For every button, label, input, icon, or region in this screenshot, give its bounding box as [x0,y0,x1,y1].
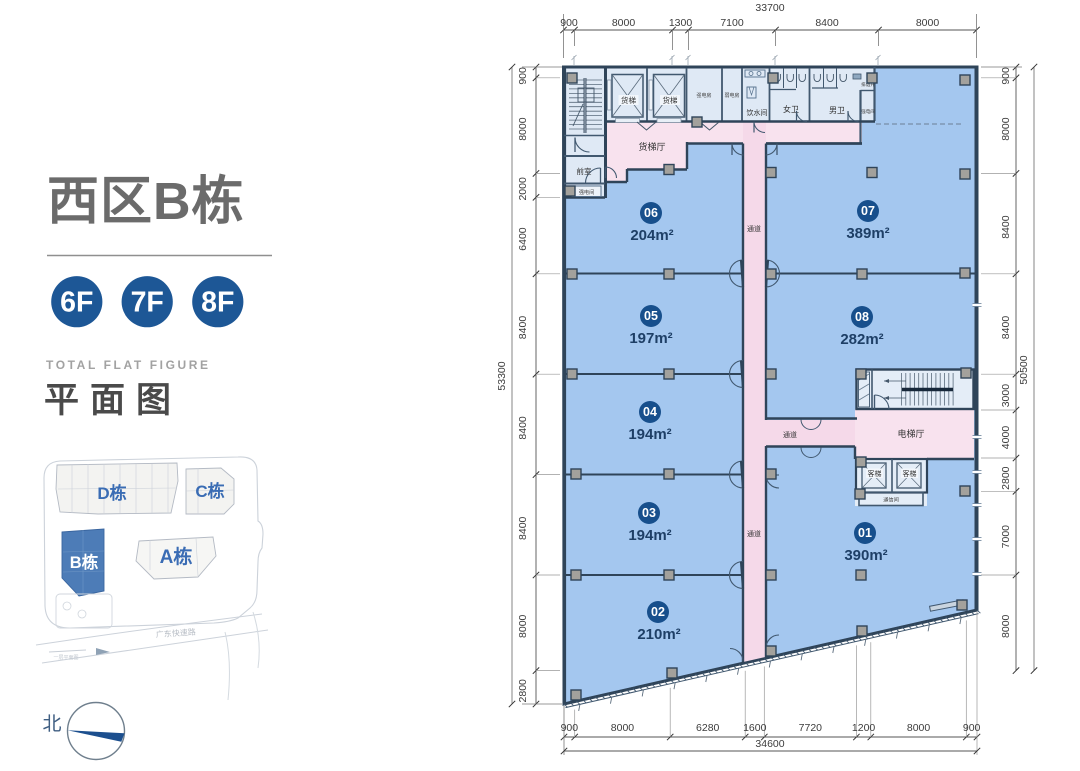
svg-text:06: 06 [644,206,658,220]
svg-text:通道: 通道 [783,430,797,439]
svg-text:282m²: 282m² [840,331,883,348]
svg-text:389m²: 389m² [846,225,889,242]
svg-text:204m²: 204m² [630,227,673,244]
svg-text:TOTAL FLAT FIGURE: TOTAL FLAT FIGURE [46,358,211,372]
svg-text:900: 900 [561,722,579,734]
svg-text:1300: 1300 [669,17,693,29]
svg-text:8400: 8400 [1000,215,1012,239]
svg-text:8400: 8400 [517,316,529,340]
svg-text:194m²: 194m² [628,426,671,443]
svg-text:900: 900 [1000,67,1012,85]
svg-text:8000: 8000 [1000,614,1012,638]
svg-text:6400: 6400 [517,227,529,251]
svg-text:04: 04 [643,405,657,419]
svg-text:8400: 8400 [517,416,529,440]
svg-text:1600: 1600 [743,722,767,734]
svg-text:210m²: 210m² [637,626,680,643]
svg-text:电梯厅: 电梯厅 [897,428,924,439]
svg-text:197m²: 197m² [629,330,672,347]
svg-text:8000: 8000 [612,17,636,29]
svg-text:34600: 34600 [755,738,784,750]
svg-text:A栋: A栋 [160,545,193,568]
svg-text:194m²: 194m² [628,527,671,544]
svg-text:900: 900 [560,17,578,29]
svg-text:8000: 8000 [907,722,931,734]
svg-text:3000: 3000 [1000,384,1012,408]
svg-text:7720: 7720 [799,722,823,734]
svg-text:01: 01 [858,526,872,540]
svg-text:50500: 50500 [1018,355,1030,384]
svg-text:货梯: 货梯 [621,95,636,105]
svg-text:北: 北 [42,713,61,735]
svg-text:7000: 7000 [1000,525,1012,549]
svg-text:通道: 通道 [747,224,761,233]
svg-text:02: 02 [651,605,665,619]
svg-text:8400: 8400 [1000,316,1012,340]
svg-text:7F: 7F [131,287,164,319]
svg-text:8400: 8400 [517,516,529,540]
svg-text:B栋: B栋 [70,552,99,572]
svg-text:通信间: 通信间 [883,496,899,504]
svg-text:8000: 8000 [611,722,635,734]
svg-text:05: 05 [644,309,658,323]
svg-text:900: 900 [963,722,981,734]
svg-text:强电间: 强电间 [579,188,595,196]
svg-text:8000: 8000 [916,17,940,29]
svg-text:8F: 8F [201,287,234,319]
svg-text:2800: 2800 [517,679,529,703]
svg-text:900: 900 [517,67,529,85]
svg-text:平面图: 平面图 [44,381,182,420]
svg-text:强电房: 强电房 [696,92,711,99]
svg-text:7100: 7100 [720,17,744,29]
svg-text:33700: 33700 [755,2,784,14]
svg-text:6280: 6280 [696,722,720,734]
svg-text:8400: 8400 [815,17,839,29]
svg-text:D栋: D栋 [97,483,126,503]
svg-text:客梯: 客梯 [903,469,917,478]
svg-text:03: 03 [642,506,656,520]
svg-text:08: 08 [855,310,869,324]
svg-text:饮水间: 饮水间 [747,108,768,117]
svg-text:广东快速路: 广东快速路 [155,627,196,640]
svg-text:男卫: 男卫 [829,106,845,115]
svg-text:货梯: 货梯 [663,95,678,105]
svg-text:一层平面图: 一层平面图 [53,655,78,661]
svg-text:390m²: 390m² [844,547,887,564]
svg-text:西区B栋: 西区B栋 [47,173,245,231]
svg-text:货梯厅: 货梯厅 [638,141,665,152]
svg-text:8000: 8000 [517,117,529,141]
svg-text:1200: 1200 [852,722,876,734]
svg-text:6F: 6F [60,287,93,319]
svg-text:2000: 2000 [517,177,529,201]
svg-text:4000: 4000 [1000,426,1012,450]
svg-text:C栋: C栋 [195,481,224,501]
svg-text:前室: 前室 [577,166,592,176]
svg-text:弱电房: 弱电房 [724,92,739,99]
svg-text:8000: 8000 [1000,117,1012,141]
svg-text:8000: 8000 [517,614,529,638]
svg-text:2800: 2800 [1000,466,1012,490]
svg-text:53300: 53300 [496,361,508,390]
svg-text:强电间: 强电间 [861,108,875,115]
svg-text:07: 07 [861,204,875,218]
svg-text:通道: 通道 [747,529,761,538]
svg-text:客梯: 客梯 [868,469,882,478]
